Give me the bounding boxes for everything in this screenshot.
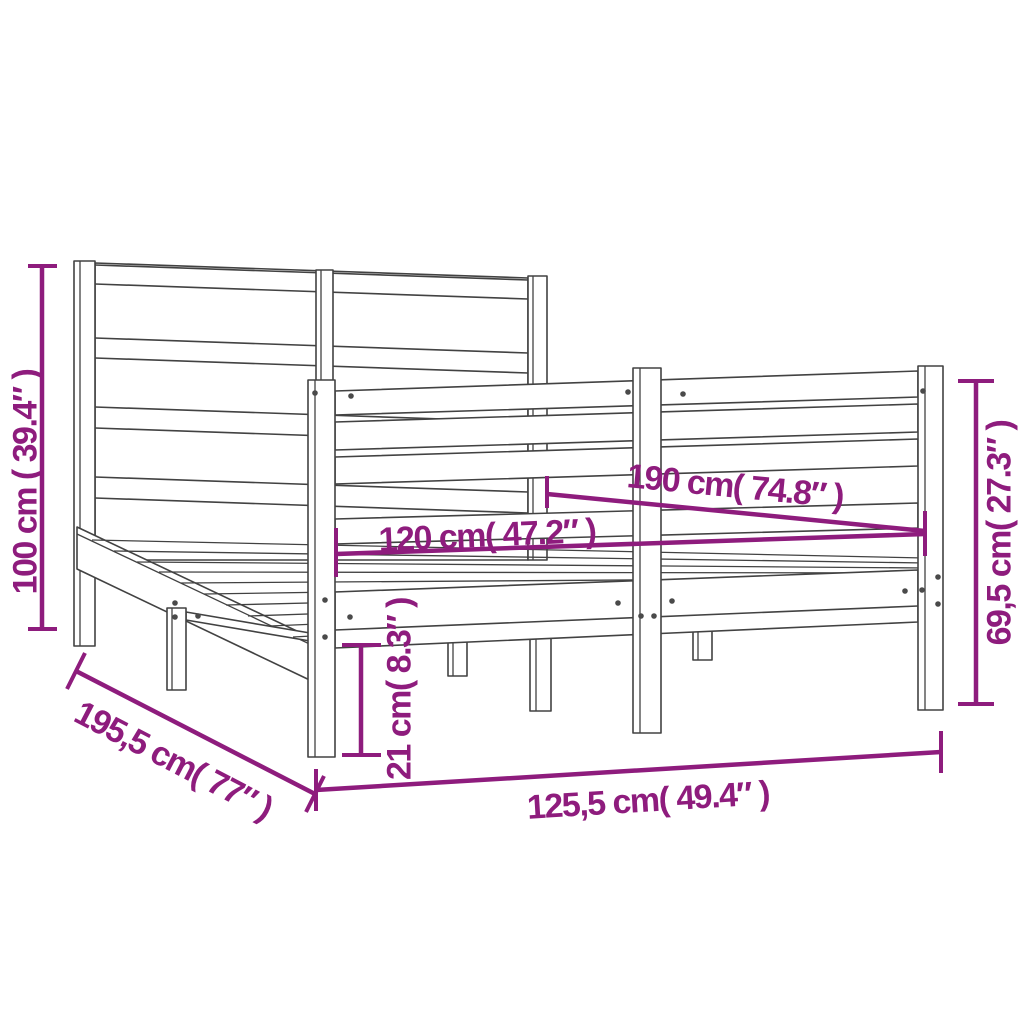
bed-frame-line-drawing [0, 0, 1024, 1024]
footboard-middle-post [633, 368, 661, 733]
dimension-label-footboard-height: 69,5 cm( 27.3″ ) [981, 421, 1020, 646]
side-rail-leg [167, 608, 186, 690]
dimension-line-rail-height [342, 645, 381, 755]
footboard-left-post [308, 380, 335, 757]
headboard-left-post [74, 261, 95, 646]
dimension-label-rail-height: 21 cm( 8.3″ ) [381, 598, 420, 780]
bed-frame-dimension-diagram: 100 cm ( 39.4″ ) 190 cm( 74.8″ ) 120 cm(… [0, 0, 1024, 1024]
dimension-label-headboard-height: 100 cm ( 39.4″ ) [7, 370, 46, 595]
footboard-right-post [918, 366, 943, 710]
footboard-boards [335, 371, 918, 484]
